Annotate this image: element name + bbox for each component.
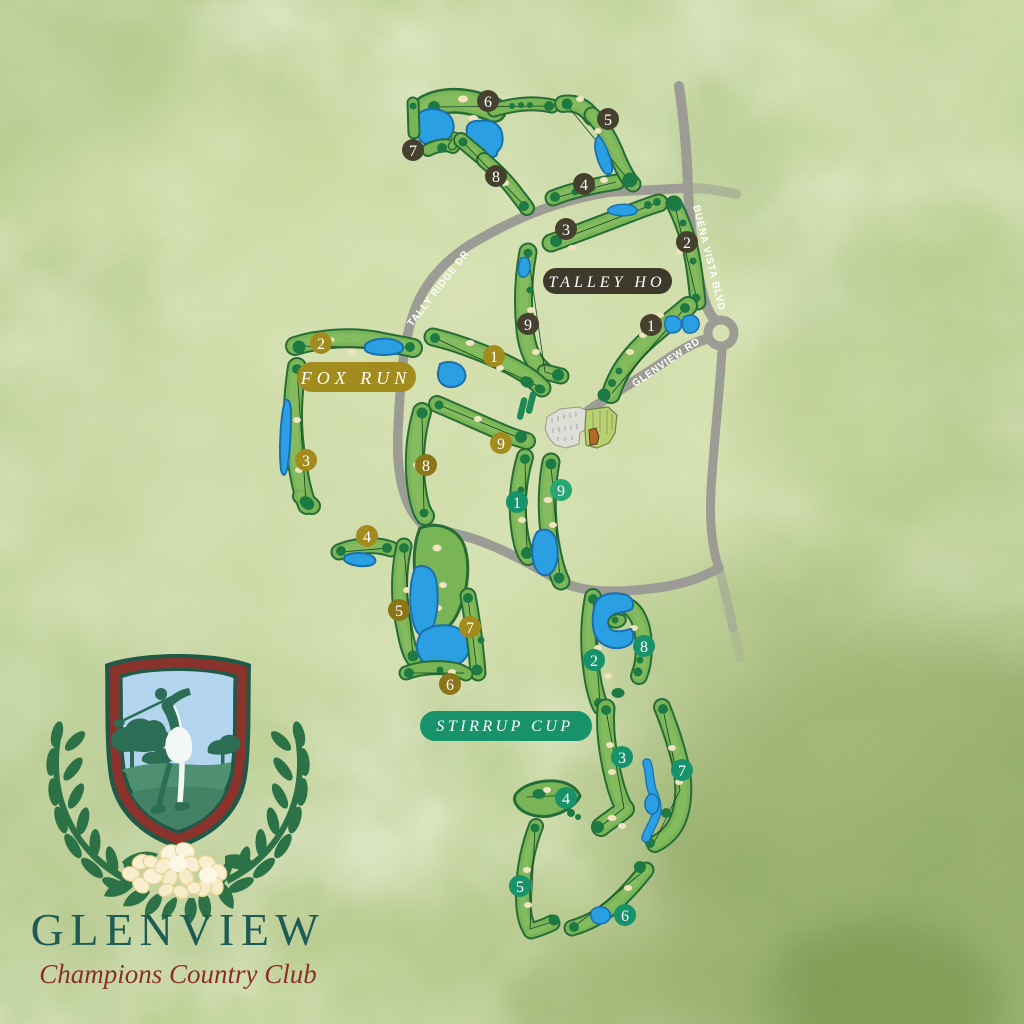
svg-text:7: 7 (678, 763, 686, 780)
svg-text:TALLEY HO: TALLEY HO (548, 274, 665, 291)
svg-text:7: 7 (466, 620, 474, 637)
svg-text:8: 8 (492, 169, 500, 186)
svg-text:9: 9 (524, 317, 532, 334)
svg-text:STIRRUP CUP: STIRRUP CUP (436, 718, 573, 735)
svg-text:8: 8 (422, 458, 430, 475)
svg-text:6: 6 (621, 908, 629, 925)
svg-text:4: 4 (562, 791, 570, 808)
svg-text:2: 2 (317, 336, 325, 353)
svg-text:4: 4 (363, 529, 371, 546)
svg-text:Champions Country Club: Champions Country Club (39, 959, 317, 989)
svg-text:8: 8 (640, 639, 648, 656)
svg-text:4: 4 (580, 177, 588, 194)
svg-text:9: 9 (557, 483, 565, 500)
svg-text:3: 3 (302, 453, 310, 470)
svg-text:GLENVIEW: GLENVIEW (31, 904, 326, 955)
svg-text:2: 2 (590, 653, 598, 670)
svg-text:1: 1 (647, 318, 655, 335)
svg-text:2: 2 (683, 235, 691, 252)
svg-text:6: 6 (484, 94, 492, 111)
svg-text:9: 9 (497, 436, 505, 453)
svg-text:5: 5 (395, 603, 403, 620)
svg-text:7: 7 (409, 143, 417, 160)
svg-text:1: 1 (490, 349, 498, 366)
svg-text:5: 5 (516, 879, 524, 896)
svg-text:FOX RUN: FOX RUN (300, 368, 412, 388)
svg-text:5: 5 (604, 112, 612, 129)
svg-text:3: 3 (618, 750, 626, 767)
svg-text:1: 1 (513, 495, 521, 512)
svg-text:6: 6 (446, 677, 454, 694)
svg-text:3: 3 (562, 222, 570, 239)
